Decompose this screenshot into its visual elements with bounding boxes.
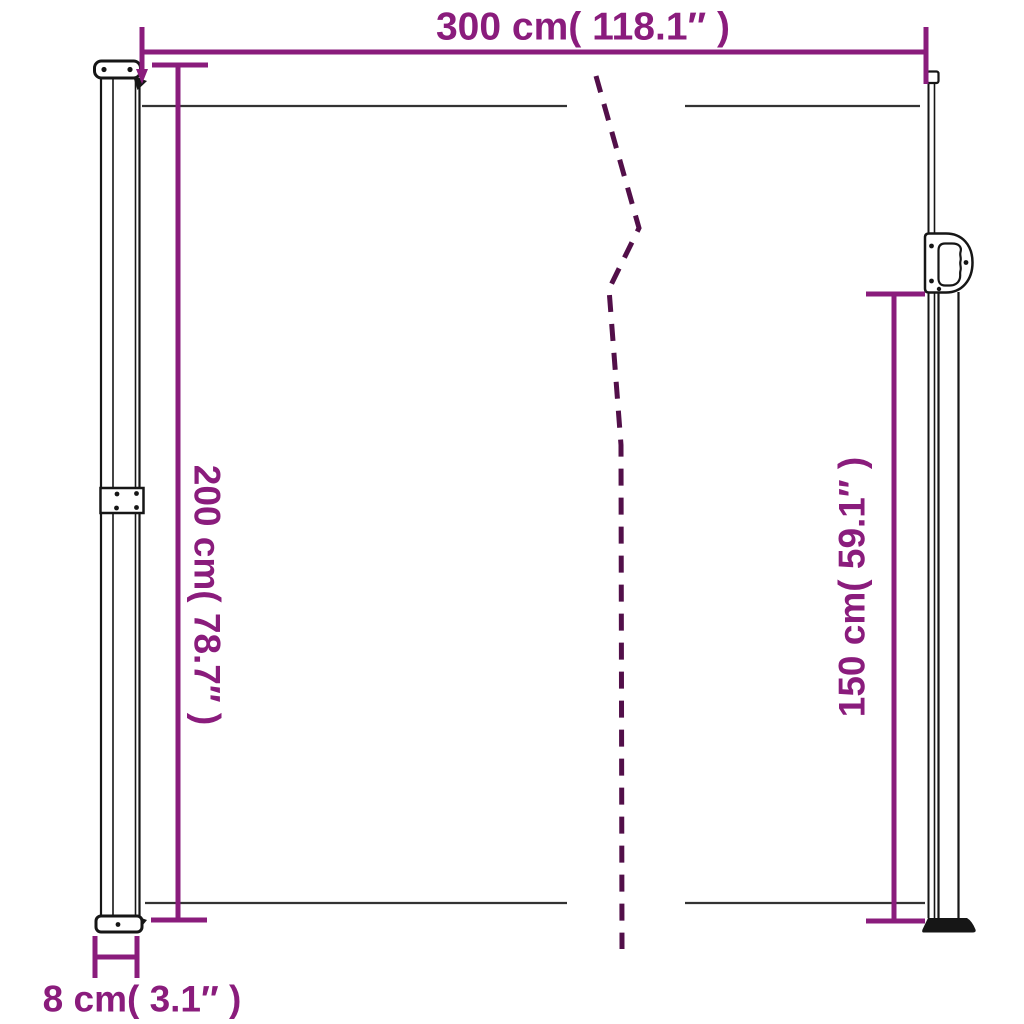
right-pole-foot xyxy=(922,918,976,933)
dim-height-150: 150 cm( 59.1″ ) xyxy=(832,294,926,921)
dim-width-300: 300 cm( 118.1″ ) xyxy=(136,6,926,85)
right-assembly xyxy=(922,72,976,933)
dim-height-200: 200 cm( 78.7″ ) xyxy=(151,65,228,920)
screw-icon xyxy=(134,491,139,496)
diagram-canvas: 300 cm( 118.1″ ) 200 cm( 78.7″ ) 150 cm(… xyxy=(0,0,1024,1024)
left-pole-foot xyxy=(96,915,147,932)
dim-height-left-label: 200 cm( 78.7″ ) xyxy=(187,465,228,725)
screw-icon xyxy=(115,492,120,497)
handle xyxy=(925,234,973,293)
awning-diagram: 300 cm( 118.1″ ) 200 cm( 78.7″ ) 150 cm(… xyxy=(0,0,1024,1024)
screw-icon xyxy=(929,244,934,249)
handle-grip-cutout xyxy=(939,244,961,286)
screw-icon xyxy=(114,506,119,511)
left-pole xyxy=(95,61,148,932)
screw-icon xyxy=(964,260,969,265)
screw-icon xyxy=(134,505,139,510)
screw-icon xyxy=(101,67,106,72)
left-pole-bracket xyxy=(101,488,144,513)
screw-icon xyxy=(929,279,934,284)
awning-fabric-edges xyxy=(142,106,925,903)
dim-depth-label: 8 cm( 3.1″ ) xyxy=(43,979,242,1020)
dim-depth-8: 8 cm( 3.1″ ) xyxy=(43,936,242,1020)
break-line xyxy=(596,76,639,949)
screw-icon xyxy=(116,922,121,927)
screw-icon xyxy=(937,287,941,291)
dim-width-label: 300 cm( 118.1″ ) xyxy=(436,6,730,49)
front-rail-cap xyxy=(927,72,939,84)
screw-icon xyxy=(127,67,132,72)
dim-height-right-label: 150 cm( 59.1″ ) xyxy=(832,457,873,717)
